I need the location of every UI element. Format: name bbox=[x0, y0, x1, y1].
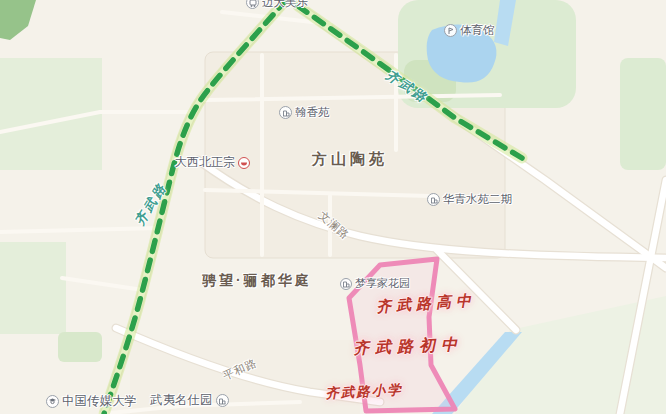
noodle-shop-label-line1: 大西北正宗 bbox=[175, 154, 235, 171]
building-icon bbox=[216, 394, 229, 407]
building-icon bbox=[279, 106, 292, 119]
bus-stop-label: 迈大美乐 bbox=[262, 0, 308, 10]
map-base-layer bbox=[0, 0, 666, 414]
annotation-school-middle: 齐武路初中 bbox=[353, 335, 464, 360]
poi-wuyimingshiyuan[interactable]: 武夷名仕园 bbox=[150, 392, 229, 409]
poi-huaqingshuiyuan[interactable]: 华青水苑二期 bbox=[427, 192, 512, 207]
restaurant-icon bbox=[238, 157, 250, 169]
stadium-flag-icon bbox=[444, 24, 457, 37]
poi-communication-university[interactable]: 中国传媒大学 bbox=[46, 393, 137, 410]
building-icon bbox=[427, 193, 440, 206]
mengxiangjia-label: 梦享家花园 bbox=[355, 276, 410, 291]
area-label-chengwang-liduhuating[interactable]: 骋望·骊都华庭 bbox=[202, 272, 312, 290]
graduation-cap-icon bbox=[46, 395, 59, 408]
poi-hanxiangyuan[interactable]: 翰香苑 bbox=[279, 105, 330, 120]
communication-university-label: 中国传媒大学 bbox=[62, 393, 137, 410]
poi-mengxiangjia[interactable]: 梦享家花园 bbox=[340, 276, 410, 291]
hanxiangyuan-label: 翰香苑 bbox=[295, 105, 330, 120]
poi-gymnasium[interactable]: 体育馆 bbox=[444, 23, 495, 38]
map-canvas[interactable]: 迈大美乐 体育馆 翰香苑 方山陶苑 大西北正宗 牛肉拉面 华青水苑二期 文澜路 … bbox=[0, 0, 666, 414]
wuyimingshiyuan-label: 武夷名仕园 bbox=[150, 392, 213, 409]
poi-noodle-shop[interactable]: 大西北正宗 bbox=[175, 154, 250, 171]
bus-icon bbox=[246, 0, 259, 9]
gymnasium-label: 体育馆 bbox=[460, 23, 495, 38]
poi-bus-stop[interactable]: 迈大美乐 bbox=[246, 0, 308, 10]
building-icon bbox=[340, 278, 352, 290]
huaqingshuiyuan-label: 华青水苑二期 bbox=[443, 192, 512, 207]
area-label-fangshantaoyuan[interactable]: 方山陶苑 bbox=[312, 150, 388, 169]
